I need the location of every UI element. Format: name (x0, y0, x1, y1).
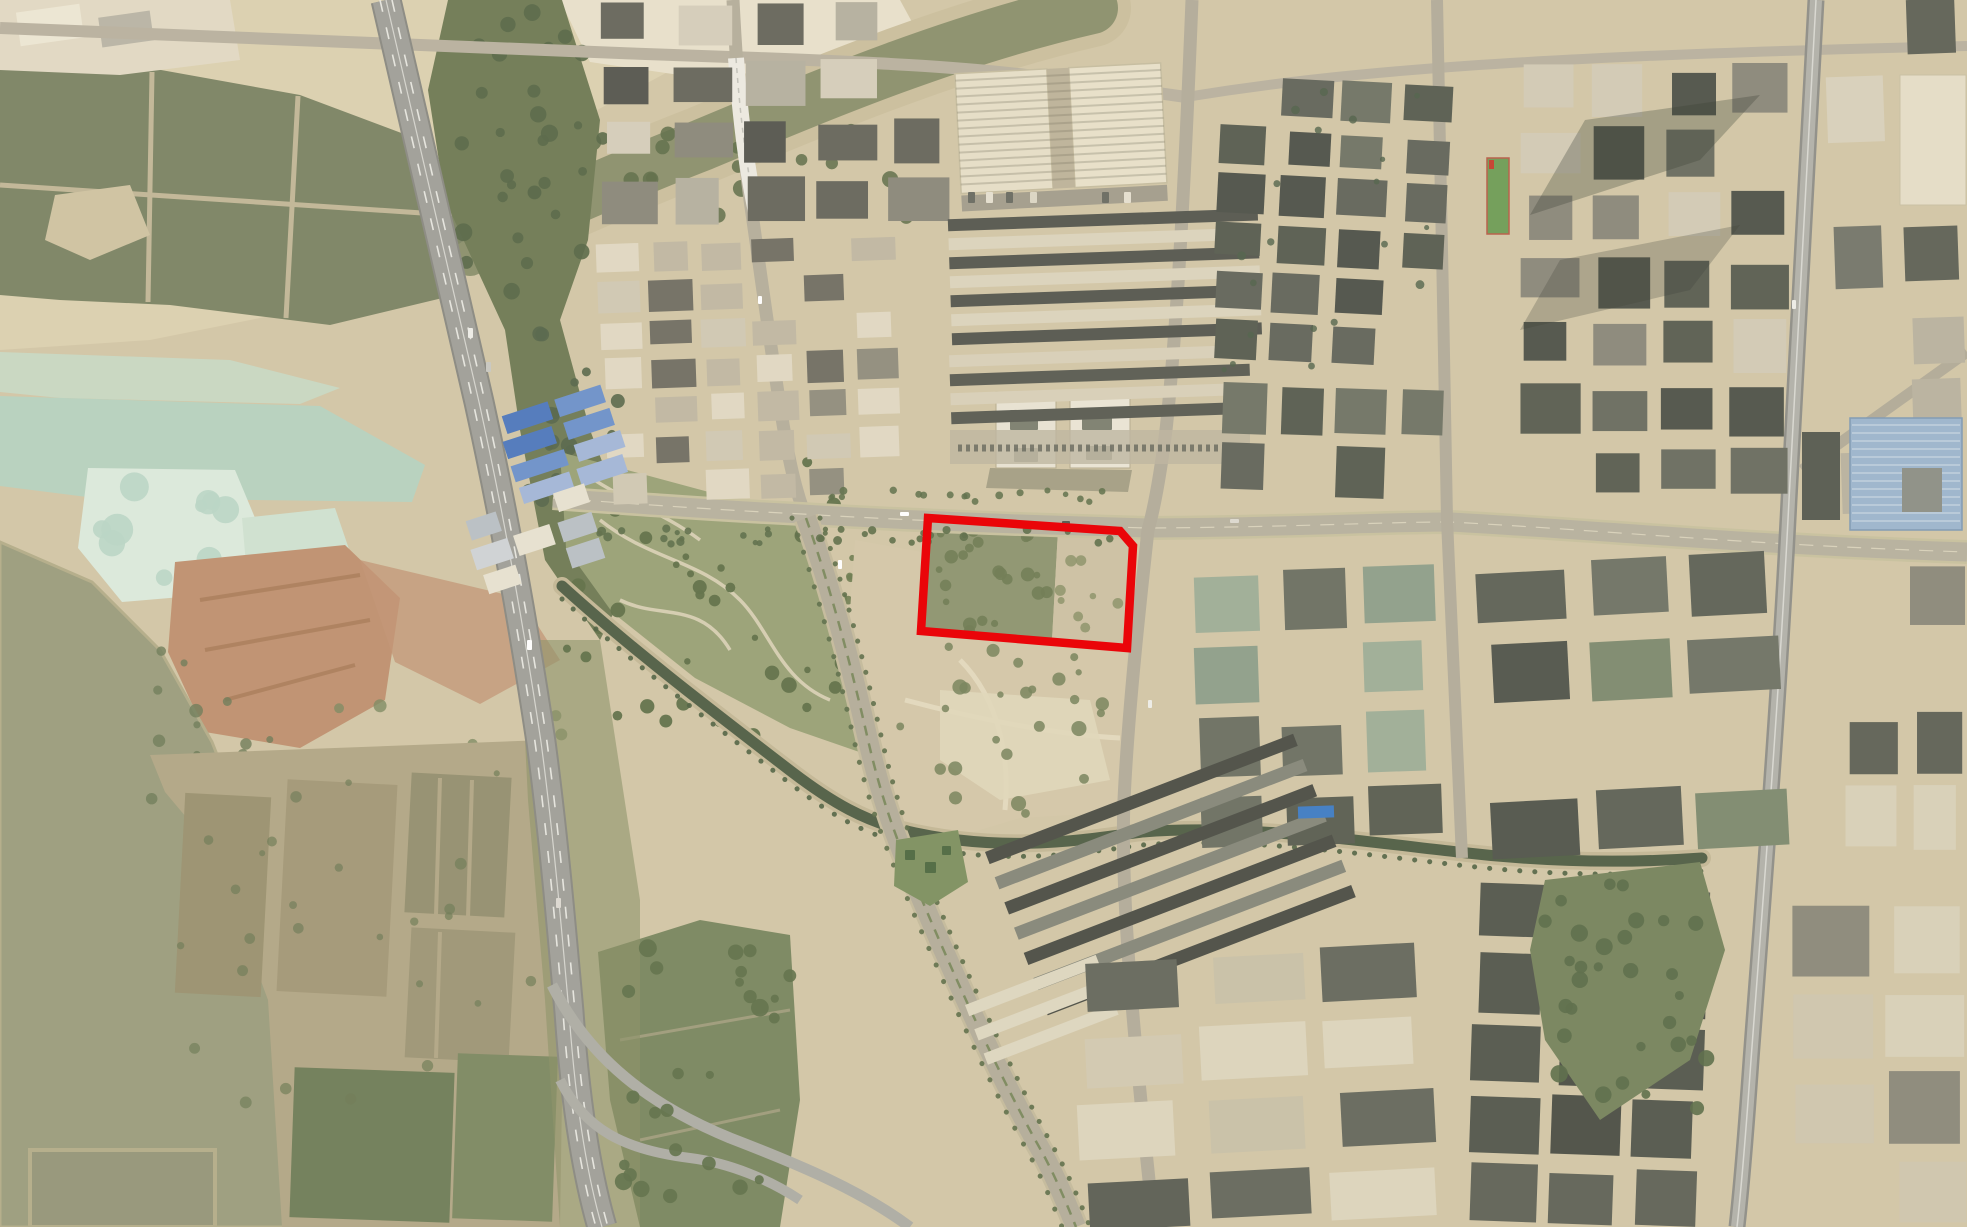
atmospheric-haze (0, 0, 1967, 1227)
map-render-root (0, 0, 1967, 1227)
satellite-imagery-canvas[interactable] (0, 0, 1967, 1227)
satellite-map-view[interactable] (0, 0, 1967, 1227)
